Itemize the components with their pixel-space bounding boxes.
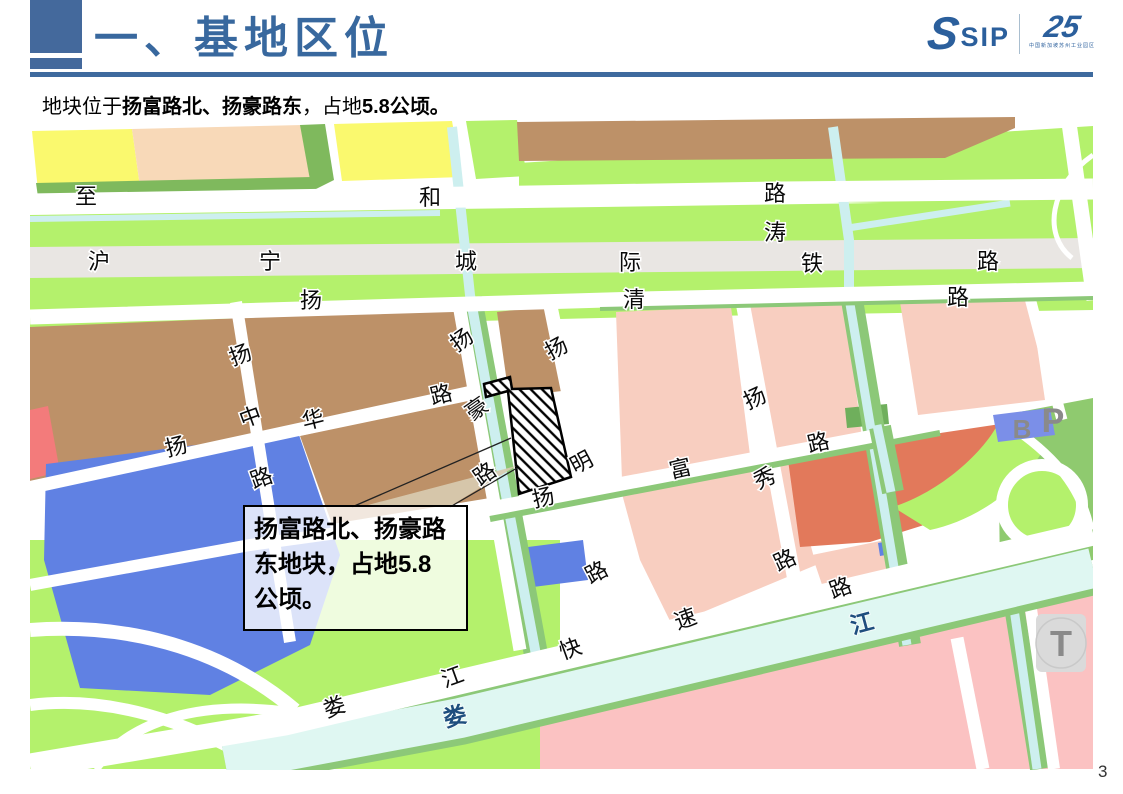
- site-map: 至和路涛沪宁城际铁路扬清路扬中路扬华路扬豪路扬明路扬富路扬秀路娄江快速路娄江 B…: [0, 0, 1123, 794]
- map-label-扬清路: 路: [947, 285, 969, 310]
- parcel-pink-1: [616, 307, 750, 480]
- callout-line-2: 东地块，占地5.8: [254, 547, 457, 582]
- map-marker-B: B: [1013, 414, 1032, 444]
- page-number: 3: [1098, 762, 1107, 782]
- parcel-pink-3: [900, 298, 1045, 415]
- map-label-沪宁城际铁路: 路: [977, 249, 999, 274]
- map-label-涛: 涛: [764, 220, 786, 245]
- site-callout: 扬富路北、扬豪路 东地块，占地5.8 公顷。: [243, 505, 468, 631]
- map-label-扬清路: 扬: [300, 288, 322, 313]
- map-label-沪宁城际铁路: 沪: [88, 249, 110, 274]
- map-marker-T: T: [1050, 623, 1072, 664]
- map-label-扬富路: 扬: [530, 483, 557, 512]
- slide: 一、基地区位 S SIP 25 中国新加坡苏州工业园区 地块位于扬富路北、扬豪路…: [0, 0, 1123, 794]
- parcel-yellow-2: [334, 121, 462, 181]
- map-label-沪宁城际铁路: 宁: [259, 249, 281, 274]
- callout-line-1: 扬富路北、扬豪路: [254, 512, 457, 547]
- parcel-blue-small-1: [528, 540, 588, 587]
- map-label-沪宁城际铁路: 铁: [801, 251, 823, 276]
- map-marker-P: P: [1042, 402, 1065, 440]
- map-label-沪宁城际铁路: 城: [455, 249, 477, 274]
- map-label-至和路: 至: [75, 184, 97, 209]
- callout-line-3: 公顷。: [254, 582, 457, 617]
- parcel-brown-top: [517, 117, 1015, 161]
- map-label-扬清路: 清: [623, 287, 645, 312]
- map-label-至和路: 路: [764, 181, 786, 206]
- map-label-至和路: 和: [419, 185, 441, 210]
- map-label-沪宁城际铁路: 际: [619, 250, 641, 275]
